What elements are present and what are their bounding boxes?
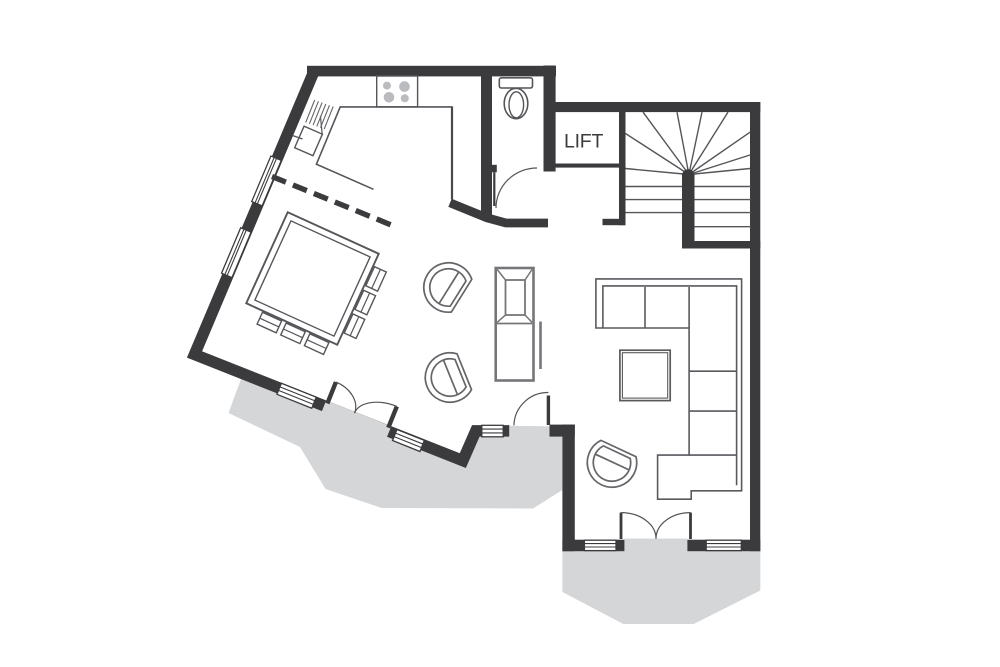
- svg-text:LIFT: LIFT: [564, 130, 604, 152]
